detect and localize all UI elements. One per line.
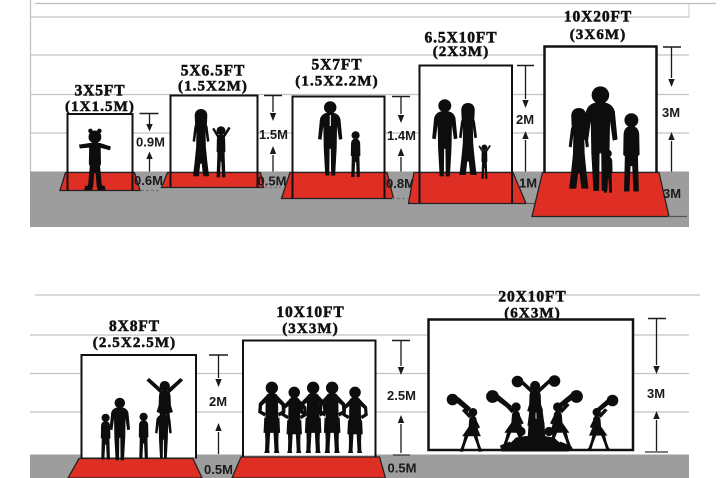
svg-text:0.6M: 0.6M: [134, 173, 163, 188]
svg-text:0.5M: 0.5M: [258, 174, 287, 189]
svg-text:1.5M: 1.5M: [259, 127, 288, 142]
svg-text:3M: 3M: [663, 186, 681, 201]
svg-text:1M: 1M: [519, 176, 537, 191]
svg-text:20X10FT: 20X10FT: [498, 289, 566, 306]
svg-text:1.4M: 1.4M: [387, 128, 416, 143]
svg-text:(1.5X2.2M): (1.5X2.2M): [295, 74, 378, 90]
svg-text:(3X6M): (3X6M): [570, 27, 627, 43]
svg-text:8X8FT: 8X8FT: [109, 318, 160, 335]
svg-text:3X5FT: 3X5FT: [75, 83, 126, 100]
svg-text:0.9M: 0.9M: [136, 135, 165, 150]
svg-text:5X6.5FT: 5X6.5FT: [181, 63, 245, 80]
svg-text:(2.5X2.5M): (2.5X2.5M): [93, 335, 176, 351]
svg-text:3M: 3M: [662, 105, 680, 120]
svg-text:5X7FT: 5X7FT: [312, 57, 363, 74]
svg-text:10X10FT: 10X10FT: [276, 304, 344, 321]
svg-text:2M: 2M: [516, 112, 534, 127]
svg-text:3M: 3M: [647, 386, 665, 401]
svg-text:(2X3M): (2X3M): [433, 44, 490, 60]
svg-text:(3X3M): (3X3M): [282, 321, 339, 337]
svg-text:10X20FT: 10X20FT: [564, 9, 632, 26]
svg-text:0.5M: 0.5M: [204, 462, 233, 477]
svg-text:(1X1.5M): (1X1.5M): [65, 99, 135, 115]
svg-text:0.5M: 0.5M: [388, 461, 417, 476]
svg-text:2M: 2M: [209, 394, 227, 409]
svg-text:2.5M: 2.5M: [387, 388, 416, 403]
svg-text:(1.5X2M): (1.5X2M): [178, 79, 248, 95]
